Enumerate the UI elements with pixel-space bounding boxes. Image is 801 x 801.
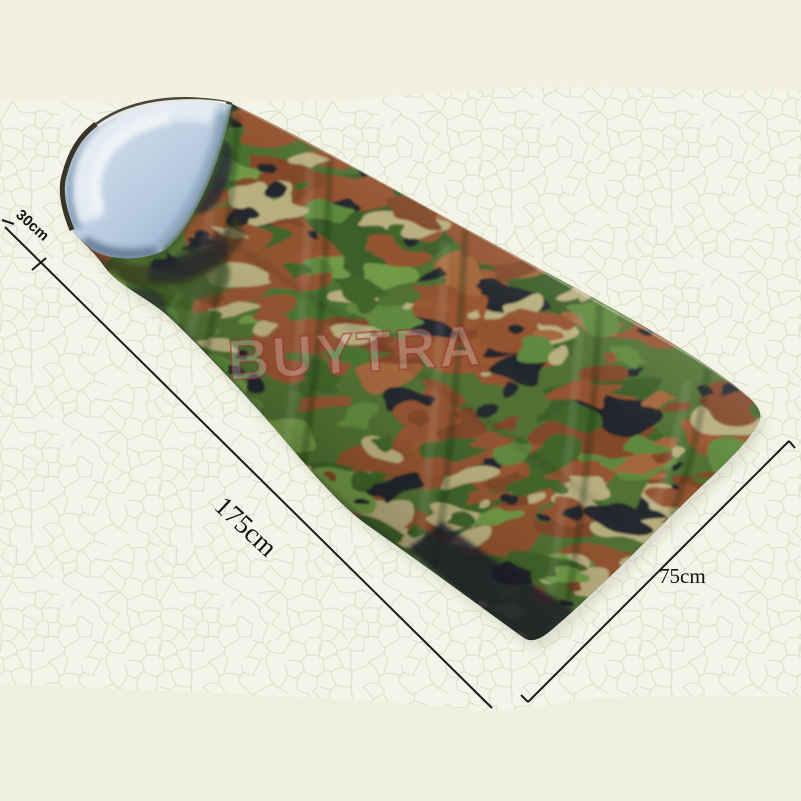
- svg-text:75cm: 75cm: [659, 564, 706, 588]
